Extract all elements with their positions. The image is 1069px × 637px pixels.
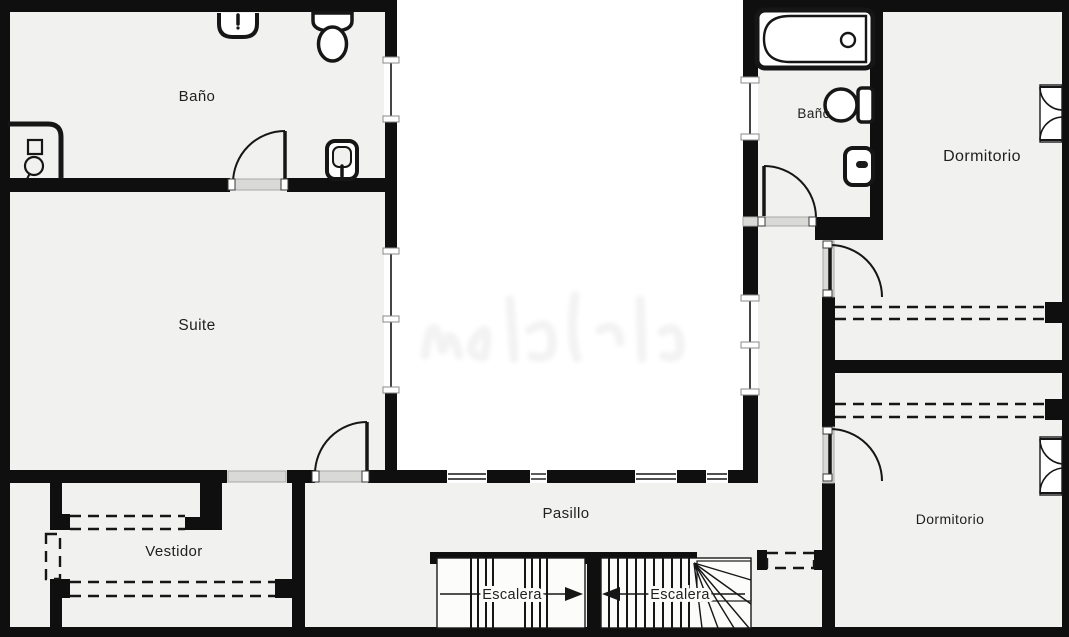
floor-plan: Escalera Escalera Baño Suite Vestidor Pa… (0, 0, 1069, 637)
window-strip-icon (741, 77, 759, 140)
courtyard-void (397, 0, 743, 471)
casement-window-icon (1040, 85, 1062, 142)
window-strip-icon (447, 470, 487, 483)
room-label-bathroom-second: Baño (797, 106, 830, 121)
threshold (228, 471, 286, 482)
sink-icon (845, 148, 873, 185)
bathtub-icon (757, 10, 873, 68)
wall-segment (50, 598, 62, 627)
wall-segment (0, 0, 397, 12)
wall-segment (50, 483, 62, 530)
wall-segment (487, 470, 530, 483)
wall-segment (815, 217, 883, 240)
wall-segment (385, 0, 397, 57)
wall-segment (287, 470, 315, 483)
window-strip-icon (383, 57, 399, 122)
wall-segment (677, 470, 706, 483)
stair-left-label: Escalera (482, 587, 542, 603)
wall-segment (62, 514, 70, 530)
window-strip-icon (706, 470, 728, 483)
wall-segment (0, 178, 230, 192)
toilet-icon (825, 88, 873, 122)
wall-segment (50, 579, 70, 598)
wall-segment (385, 470, 447, 483)
room-label-bathroom-main: Baño (179, 88, 216, 105)
wall-segment (587, 552, 601, 637)
wall-segment (185, 517, 200, 530)
staircase-right: Escalera (601, 558, 751, 628)
wall-segment (743, 226, 758, 295)
room-label-bedroom-top: Dormitorio (943, 148, 1021, 165)
wall-segment (0, 0, 10, 637)
stair-right-label: Escalera (650, 587, 710, 603)
wall-segment (275, 579, 292, 598)
window-strip-icon (635, 470, 677, 483)
room-label-hallway: Pasillo (543, 505, 590, 522)
room-label-suite: Suite (178, 317, 215, 334)
wall-segment (757, 550, 767, 570)
window-strip-icon (383, 248, 399, 393)
casement-window-icon (1040, 437, 1062, 495)
threshold (743, 217, 815, 226)
threshold (316, 471, 367, 482)
room-label-bedroom-bottom: Dormitorio (916, 511, 985, 527)
floor-plan-drawing: Escalera Escalera Baño Suite Vestidor Pa… (0, 0, 1069, 637)
wall-segment (743, 140, 758, 217)
window-strip-icon (530, 470, 547, 483)
wall-segment (200, 483, 222, 530)
wall-segment (1062, 0, 1069, 637)
window-strip-icon (741, 295, 759, 395)
wall-segment (0, 470, 227, 483)
wall-segment (292, 483, 305, 627)
bidet-icon (327, 141, 357, 179)
wall-segment (547, 470, 635, 483)
sink-icon (219, 13, 257, 37)
wall-segment (728, 470, 758, 483)
wall-segment (822, 483, 835, 627)
wall-segment (822, 360, 1062, 373)
threshold (231, 179, 284, 190)
staircase-left: Escalera (437, 558, 585, 628)
wall-segment (385, 393, 397, 483)
wall-segment (743, 395, 758, 483)
room-label-closet: Vestidor (145, 543, 202, 560)
